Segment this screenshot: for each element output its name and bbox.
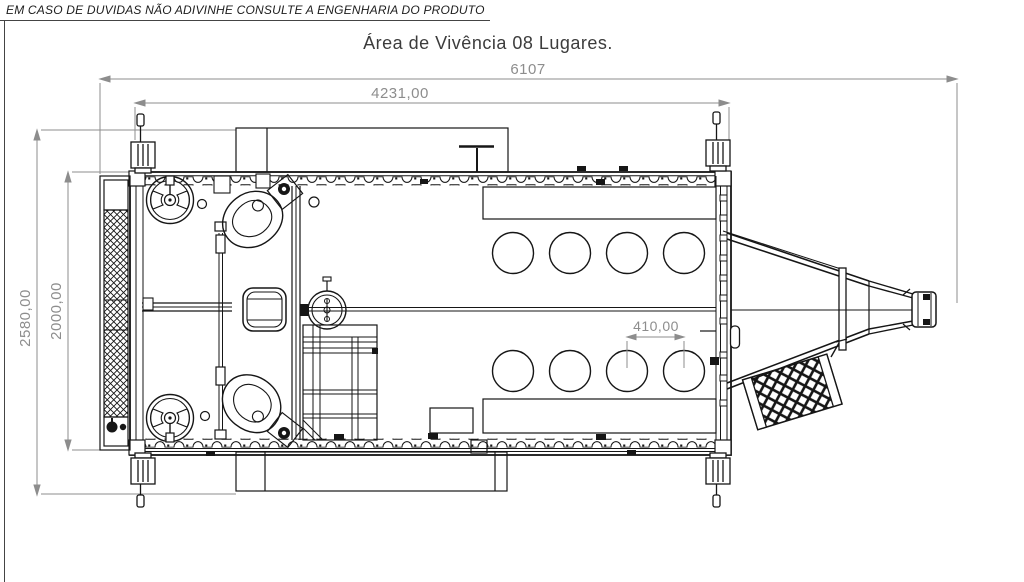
bench-bottom — [483, 399, 716, 433]
washbasin-top — [147, 176, 194, 224]
dimension-seat-pitch — [627, 334, 684, 368]
dim-label-body-width: 2000,00 — [48, 282, 65, 340]
dim-label-overall-width: 2580,00 — [17, 289, 34, 347]
seat-circles — [493, 233, 705, 392]
sliding-door-track — [215, 222, 226, 439]
washbasin-bottom — [147, 395, 194, 443]
hitch-coupler — [912, 292, 936, 327]
dim-label-body-length: 4231,00 — [371, 85, 429, 102]
seat-circle — [493, 233, 534, 274]
dim-label-seat-pitch: 410,00 — [633, 318, 679, 334]
door-handle — [731, 326, 740, 348]
wall-fitting — [214, 176, 230, 193]
seat-circle — [550, 351, 591, 392]
roof-overhang-top — [236, 128, 508, 172]
safety-cable — [723, 231, 841, 269]
seat-circle — [550, 233, 591, 274]
drawing-title: Área de Vivência 08 Lugares. — [363, 33, 613, 53]
engineering-warning-note: EM CASO DE DUVIDAS NÃO ADIVINHE CONSULTE… — [6, 3, 485, 17]
seat-circle — [607, 233, 648, 274]
support-jack-bottom-left — [131, 453, 155, 507]
bottom-wall-seal — [143, 439, 716, 448]
support-jack-top-right — [706, 112, 730, 171]
rear-step-platform — [100, 176, 130, 450]
seat-circle — [664, 233, 705, 274]
floor-locker — [430, 408, 473, 433]
kitchen-rack — [303, 325, 378, 440]
dim-label-overall-length: 6107 — [510, 61, 545, 78]
sink-cabinet — [243, 288, 286, 331]
center-table-line — [300, 308, 716, 312]
dim-arrow-right — [947, 76, 957, 82]
roof-overhang-bottom — [236, 440, 507, 491]
anti-slip-surface — [104, 210, 128, 417]
entry-steps — [743, 339, 847, 430]
drain-valve — [107, 418, 127, 433]
floor-plan-canvas: EM CASO DE DUVIDAS NÃO ADIVINHE CONSULTE… — [0, 0, 1024, 582]
wall-fitting — [256, 174, 270, 188]
seat-circle — [493, 351, 534, 392]
dim-arrow-left — [100, 76, 110, 82]
water-heater — [300, 277, 346, 329]
jockey-post — [839, 268, 846, 350]
bathroom-partition-wall — [292, 186, 300, 440]
drawing-sheet: EM CASO DE DUVIDAS NÃO ADIVINHE CONSULTE… — [0, 0, 1024, 582]
support-jack-bottom-right — [706, 453, 730, 507]
bench-top — [483, 187, 716, 219]
